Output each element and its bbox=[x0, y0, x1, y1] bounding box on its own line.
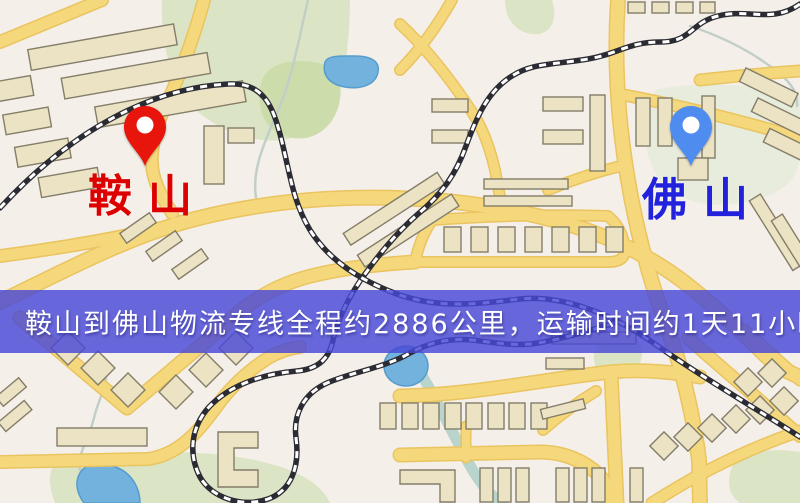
destination-pin-icon bbox=[668, 104, 714, 168]
map-background bbox=[0, 0, 800, 503]
destination-label: 佛山 bbox=[642, 176, 764, 223]
origin-label: 鞍山 bbox=[88, 174, 208, 220]
origin-pin-icon bbox=[122, 104, 168, 168]
route-info-banner: 鞍山到佛山物流专线全程约2886公里，运输时间约1天11小时. bbox=[0, 290, 800, 353]
logistics-route-map: 鞍山 佛山 鞍山到佛山物流专线全程约2886公里，运输时间约1天11小时. bbox=[0, 0, 800, 503]
route-info-text: 鞍山到佛山物流专线全程约2886公里，运输时间约1天11小时. bbox=[25, 302, 800, 341]
